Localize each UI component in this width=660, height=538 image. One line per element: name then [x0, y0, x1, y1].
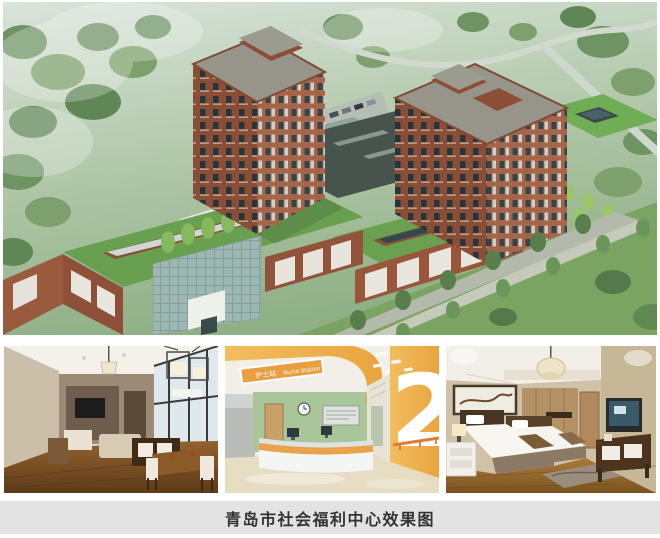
nurse-station-photo: 护士站 Nurse Station 2: [225, 346, 439, 493]
thumbnail-row: 护士站 Nurse Station 2: [4, 346, 656, 493]
aerial-rendering-image: [3, 2, 657, 335]
living-room-photo: [4, 346, 218, 493]
photo-collage-page: 护士站 Nurse Station 2: [0, 0, 660, 538]
caption-bar: 青岛市社会福利中心效果图: [0, 501, 660, 534]
wall-artwork: [454, 386, 516, 414]
bedroom-photo: [446, 346, 656, 493]
nurse-station-image: 护士站 Nurse Station 2: [225, 346, 439, 493]
main-aerial-photo: [3, 2, 657, 335]
living-room-image: [4, 346, 218, 493]
floor-number: 2: [390, 353, 439, 470]
caption-text: 青岛市社会福利中心效果图: [225, 506, 435, 530]
bedroom-image: [446, 346, 656, 493]
